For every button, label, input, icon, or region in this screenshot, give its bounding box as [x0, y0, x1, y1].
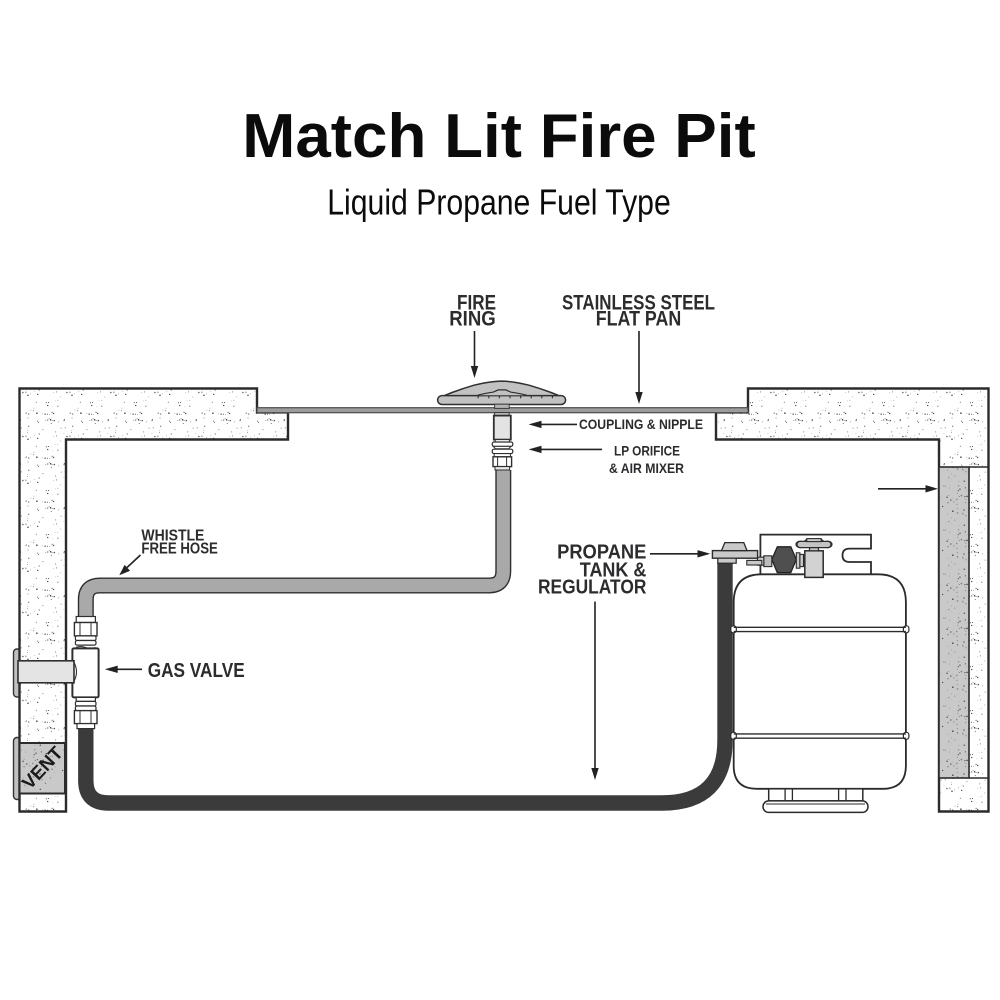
svg-text:Liquid Propane Fuel Type: Liquid Propane Fuel Type — [327, 182, 671, 223]
svg-text:REGULATOR: REGULATOR — [538, 577, 647, 599]
svg-text:Match Lit Fire Pit: Match Lit Fire Pit — [242, 102, 756, 171]
svg-text:FREE HOSE: FREE HOSE — [141, 540, 218, 557]
svg-text:LP ORIFICE: LP ORIFICE — [614, 444, 680, 459]
svg-text:& AIR MIXER: & AIR MIXER — [609, 461, 684, 476]
svg-text:COUPLING & NIPPLE: COUPLING & NIPPLE — [579, 417, 703, 432]
svg-text:FLAT PAN: FLAT PAN — [596, 308, 682, 331]
svg-text:GAS VALVE: GAS VALVE — [148, 660, 245, 682]
svg-text:RING: RING — [449, 308, 496, 331]
